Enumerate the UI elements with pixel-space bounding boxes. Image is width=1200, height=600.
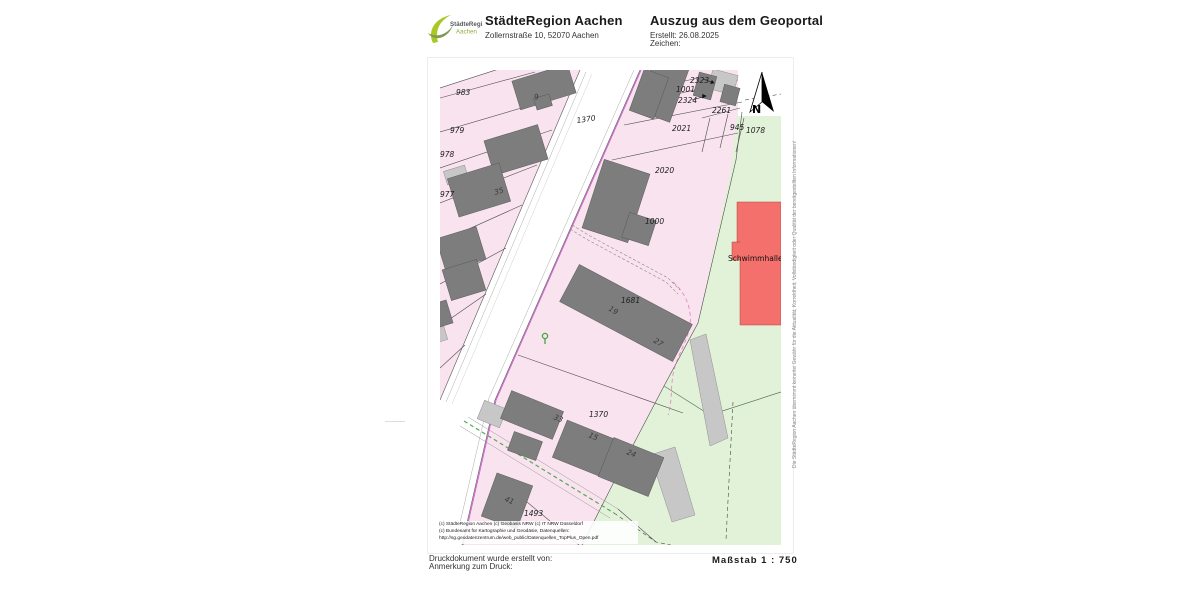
logo-swoosh-light bbox=[431, 15, 451, 43]
map-canvas: 9839799789771370232310012324226120219451… bbox=[440, 70, 781, 545]
copyright-line: (c) Bundesamt für Kartographie und Geodä… bbox=[439, 529, 636, 536]
copyright-line: (c) StädteRegion Aachen (c) Geobasis NRW… bbox=[439, 522, 636, 529]
staedteregion-logo: StädteRegion Aachen bbox=[426, 12, 482, 46]
parcel-label-1078: 1078 bbox=[746, 126, 765, 135]
parcel-label-945: 945 bbox=[730, 123, 745, 132]
copyright-box: (c) StädteRegion Aachen (c) Geobasis NRW… bbox=[437, 521, 638, 544]
parcel-label-2323: 2323 bbox=[690, 76, 709, 85]
org-address: Zollernstraße 10, 52070 Aachen bbox=[485, 31, 599, 40]
logo-text-line1: StädteRegion bbox=[450, 21, 482, 28]
parcel-label-983: 983 bbox=[456, 88, 471, 97]
map-container: 9839799789771370232310012324226120219451… bbox=[440, 70, 781, 545]
fold-mark bbox=[385, 421, 405, 422]
parcel-label-2020: 2020 bbox=[655, 166, 674, 175]
vertical-disclaimer: Die StädteRegion Aachen übernimmt keiner… bbox=[792, 138, 798, 468]
parcel-label-2324: 2324 bbox=[678, 96, 697, 105]
copyright-line: http://sg.geodatenzentrum.de/web_public/… bbox=[439, 536, 636, 543]
building-label-Schwimmhalle S: Schwimmhalle S bbox=[728, 254, 781, 263]
parcel-label-2261: 2261 bbox=[712, 106, 731, 115]
parcel-label-1000: 1000 bbox=[645, 217, 664, 226]
logo-text-line2: Aachen bbox=[456, 29, 478, 36]
parcel-label-1493: 1493 bbox=[524, 509, 543, 518]
page-title: Auszug aus dem Geoportal bbox=[650, 13, 823, 28]
org-name: StädteRegion Aachen bbox=[485, 13, 623, 28]
scale-label: Maßstab 1 : 750 bbox=[712, 555, 798, 566]
parcel-label-978: 978 bbox=[440, 150, 455, 159]
reference-label: Zeichen: bbox=[650, 39, 681, 48]
parcel-label-1681: 1681 bbox=[621, 296, 640, 305]
parcel-label-977: 977 bbox=[440, 190, 455, 199]
parcel-label-2021: 2021 bbox=[672, 124, 691, 133]
parcel-label-1001: 1001 bbox=[676, 85, 695, 94]
print-note-label: Anmerkung zum Druck: bbox=[429, 562, 513, 571]
parcel-label-979: 979 bbox=[450, 126, 465, 135]
parcel-label-1370: 1370 bbox=[589, 410, 608, 419]
north-label: N bbox=[752, 103, 761, 116]
